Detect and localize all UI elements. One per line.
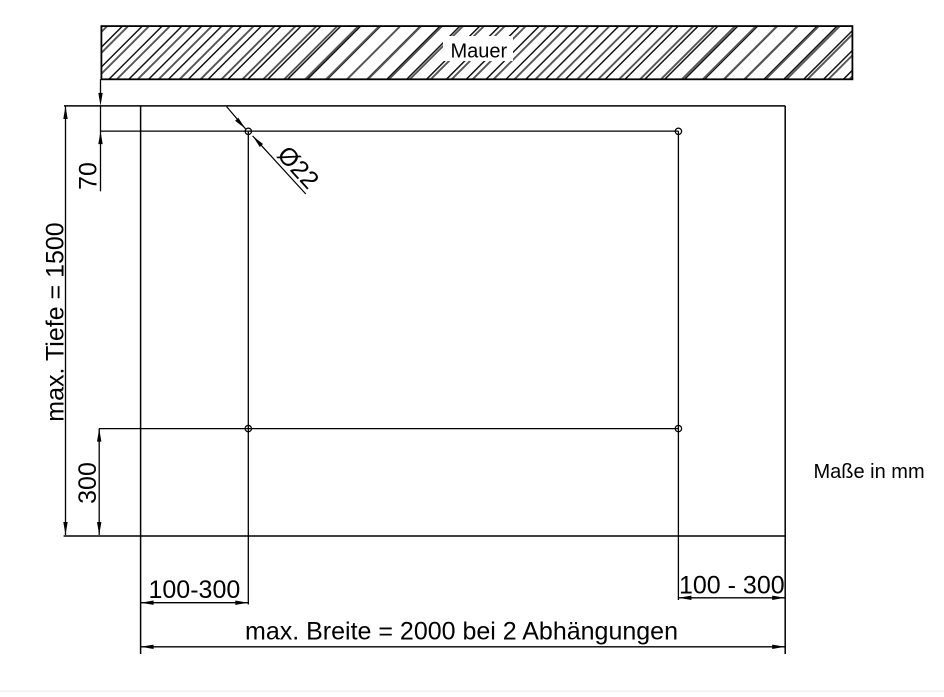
svg-text:300: 300 (74, 462, 102, 504)
svg-text:100 - 300: 100 - 300 (679, 571, 785, 599)
svg-text:100-300: 100-300 (149, 576, 241, 604)
svg-text:max. Tiefe = 1500: max. Tiefe = 1500 (42, 222, 70, 421)
svg-text:max. Breite = 2000 bei 2 Abhän: max. Breite = 2000 bei 2 Abhängungen (245, 618, 678, 646)
svg-text:Maße in mm: Maße in mm (814, 461, 925, 483)
svg-text:70: 70 (75, 162, 103, 190)
svg-text:Mauer: Mauer (451, 40, 508, 62)
